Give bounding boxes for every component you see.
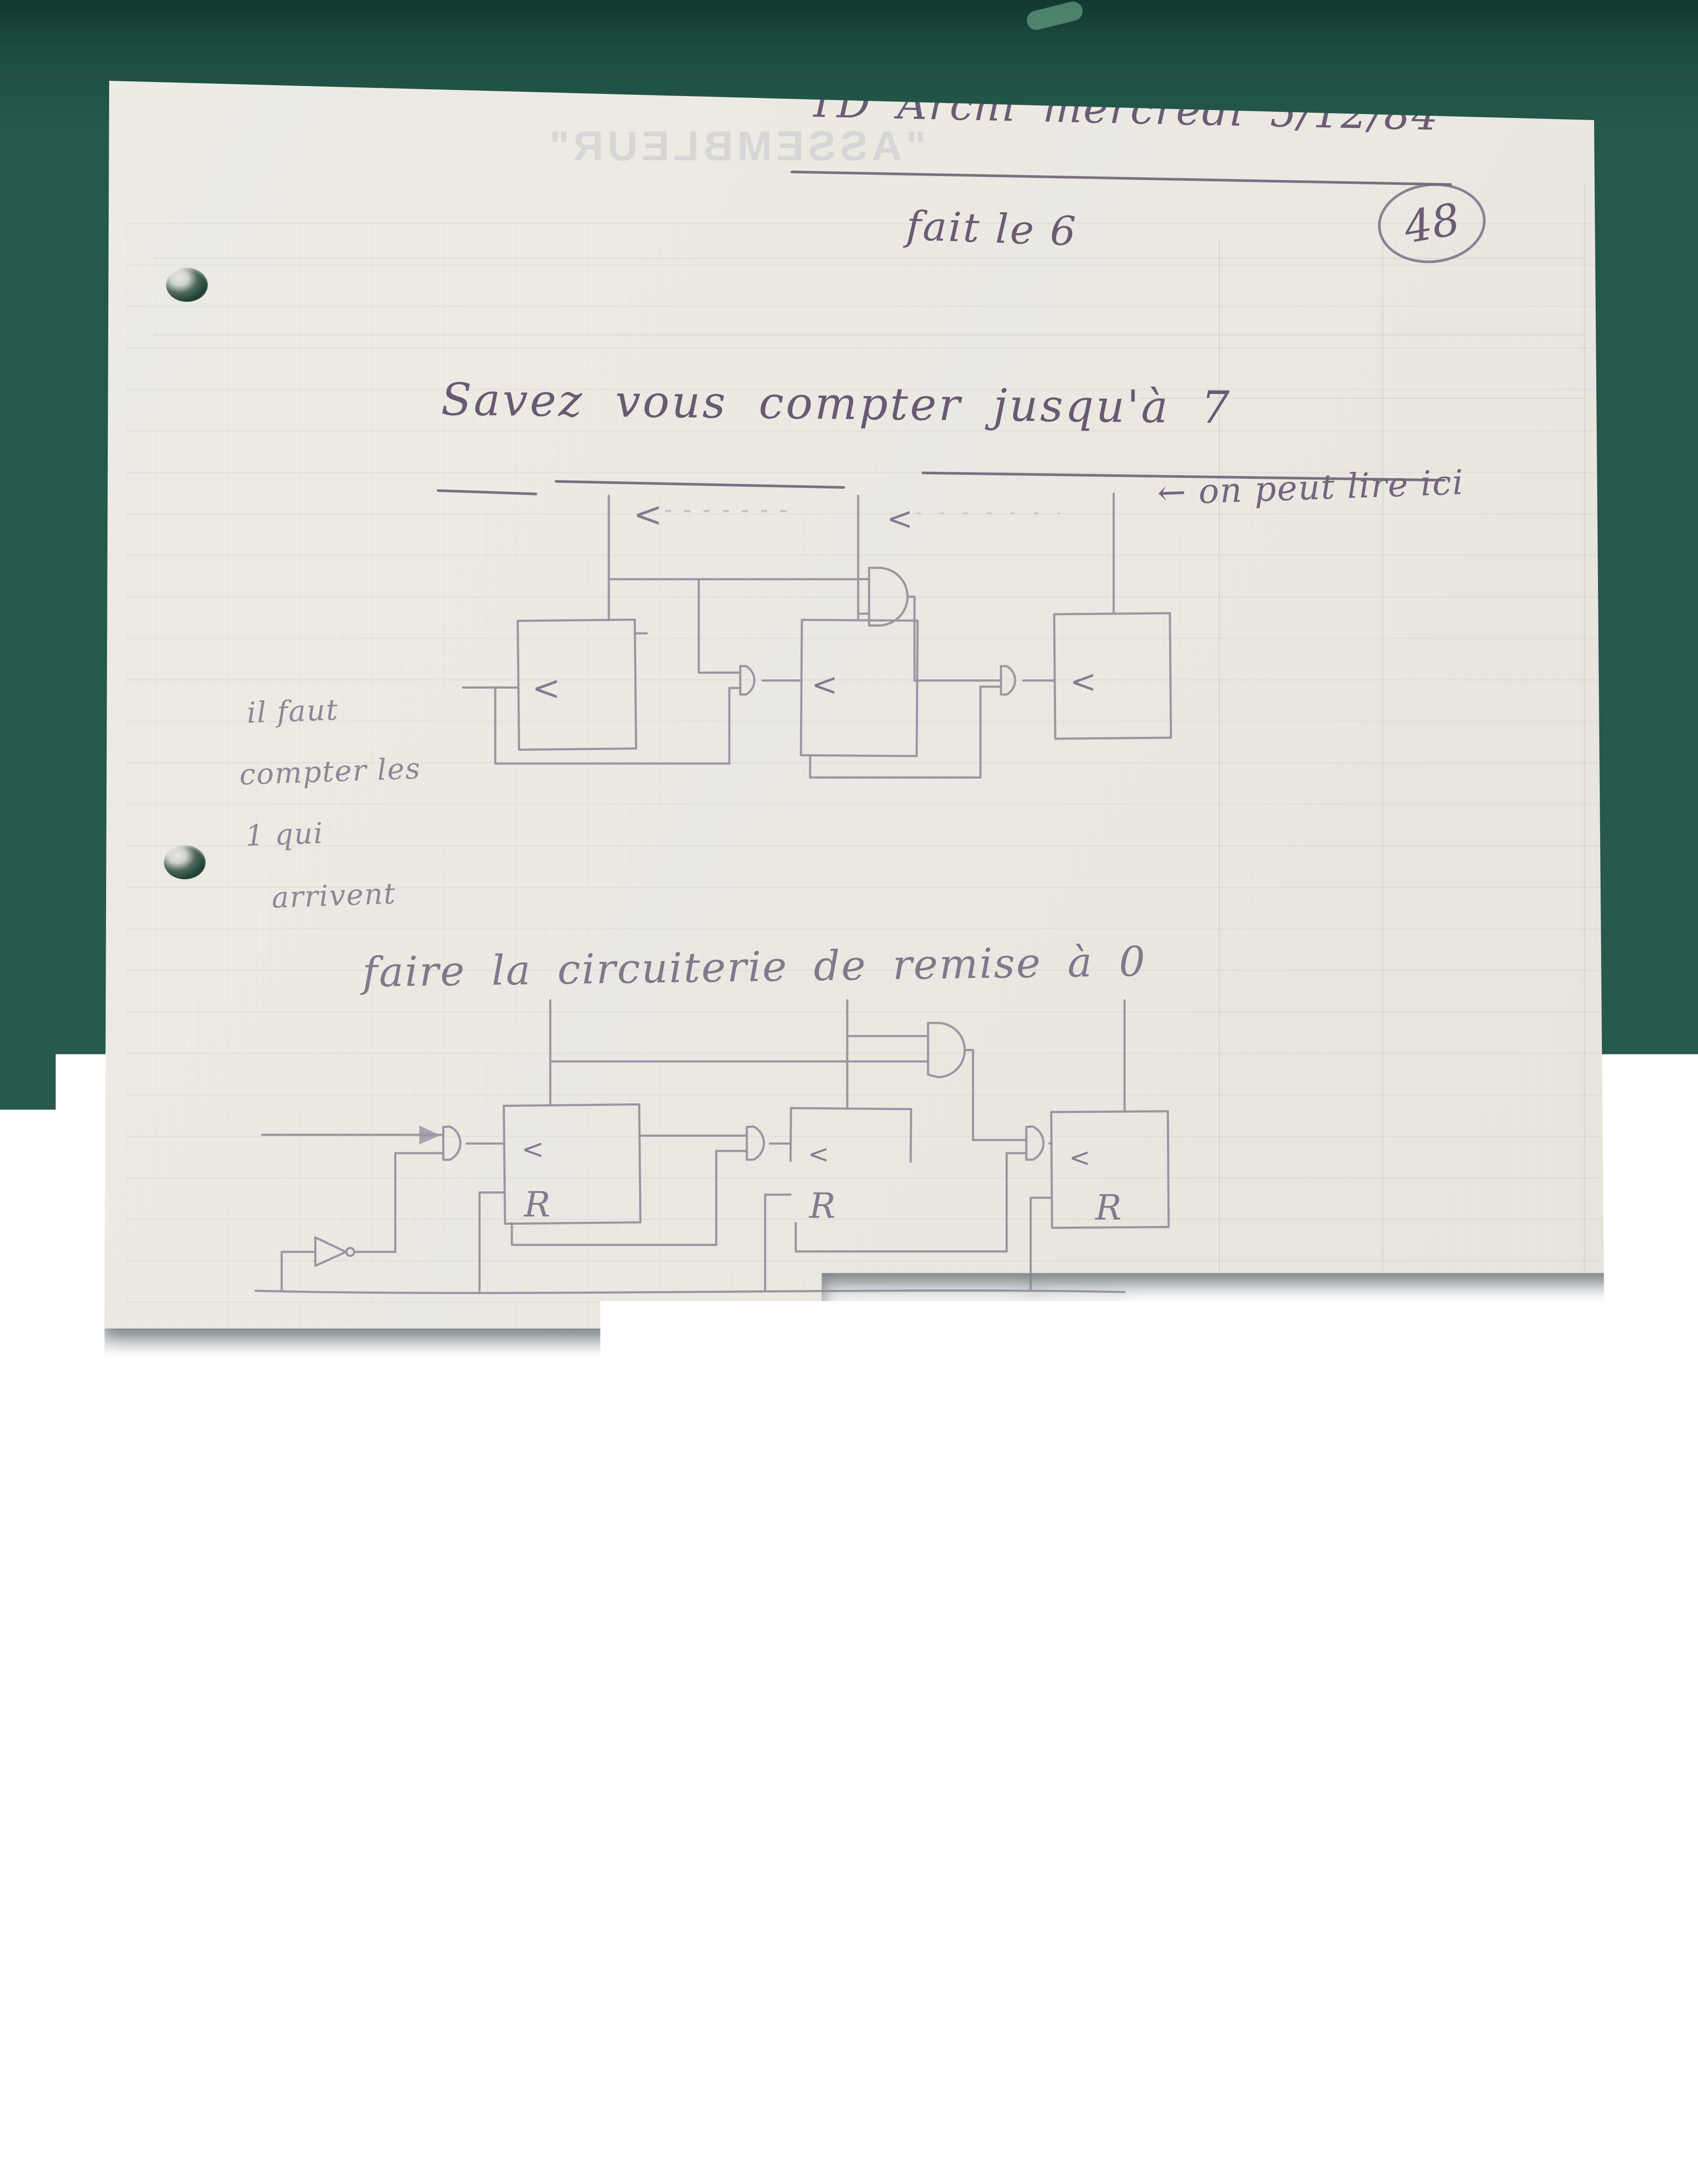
and-gate-top bbox=[928, 1023, 965, 1077]
and-gate-input bbox=[443, 1127, 460, 1160]
ghost-form-row-line bbox=[153, 334, 1585, 335]
desk-scratch-mark bbox=[1025, 0, 1085, 32]
inverter-output-line bbox=[354, 1153, 443, 1252]
header-done-note: fait le 6 bbox=[905, 202, 1078, 255]
signal-name: CHA bbox=[1205, 1556, 1327, 1609]
margin-note-line: 1 qui bbox=[245, 816, 324, 853]
reset-label-ff2: R bbox=[808, 1185, 835, 1226]
inverter-input-line bbox=[282, 1252, 315, 1291]
page-number: 48 bbox=[1400, 193, 1464, 253]
margin-note-line: compter les bbox=[239, 752, 421, 791]
reset-riser-ff1 bbox=[480, 1192, 504, 1291]
punch-hole bbox=[162, 1433, 204, 1467]
header-underline bbox=[790, 170, 1452, 186]
ghost-form-column-line bbox=[1584, 183, 1585, 2062]
inverter-bubble bbox=[346, 1248, 354, 1256]
reset-circuit-diagram: < < < R R R bbox=[245, 996, 1267, 1328]
inverter-triangle bbox=[315, 1237, 346, 1266]
clock-label-ff1: < bbox=[521, 1133, 544, 1165]
punch-hole bbox=[164, 845, 206, 879]
counter-circuit-diagram: < < < < < bbox=[463, 489, 1271, 830]
read-arrow-icon: < bbox=[633, 494, 663, 535]
and-top-output bbox=[965, 1050, 1026, 1140]
paper-sheet: "ASSEMBLEUR" TD Archi mercredi 5/12/84 f… bbox=[100, 52, 1655, 2184]
input-arrowhead bbox=[419, 1126, 440, 1144]
exercise3-line2: par un signal de chargementCHA bbox=[449, 1548, 1327, 1608]
and-gate-ff3 bbox=[1001, 666, 1015, 695]
ghost-mirrored-print: "ASSEMBLEUR" bbox=[376, 122, 926, 170]
exercise1-title: Savez vous compter jusqu'à 7 bbox=[441, 374, 1232, 434]
margin-note-line: il faut bbox=[246, 693, 339, 729]
clock-label-ff2: < bbox=[808, 1139, 829, 1169]
and-gate-top bbox=[869, 568, 908, 625]
and-gate-ff2 bbox=[740, 666, 754, 695]
and-output-line bbox=[908, 597, 1001, 681]
reset-rail bbox=[255, 1291, 1125, 1293]
clock-label-ff1: < bbox=[532, 669, 560, 708]
clock-label-ff3: < bbox=[1070, 663, 1096, 700]
reset-riser-ff3 bbox=[1031, 1198, 1052, 1291]
reset-label-ff3: R bbox=[1094, 1187, 1122, 1228]
ghost-form-row-line bbox=[153, 258, 1585, 259]
punch-hole bbox=[161, 2000, 203, 2034]
and-gate-ff3 bbox=[1026, 1127, 1043, 1160]
ff2-feedback-loop bbox=[810, 687, 1001, 778]
exercise3-line2-text: par un signal de chargement bbox=[449, 1548, 1167, 1607]
clock-label-ff3: < bbox=[1069, 1143, 1091, 1172]
and-gate-ff2 bbox=[747, 1127, 764, 1160]
reset-riser-ff2 bbox=[765, 1195, 790, 1291]
margin-note-line: arrivent bbox=[271, 877, 397, 915]
reset-label-ff1: R bbox=[523, 1184, 550, 1225]
photo-of-desk: { "colors": { "desk_green": "#26584c", "… bbox=[0, 0, 1698, 2184]
and2-upper-input bbox=[699, 579, 740, 673]
read-arrow-icon: < bbox=[887, 500, 913, 537]
clock-label-ff2: < bbox=[811, 666, 838, 703]
punch-hole bbox=[166, 268, 208, 302]
